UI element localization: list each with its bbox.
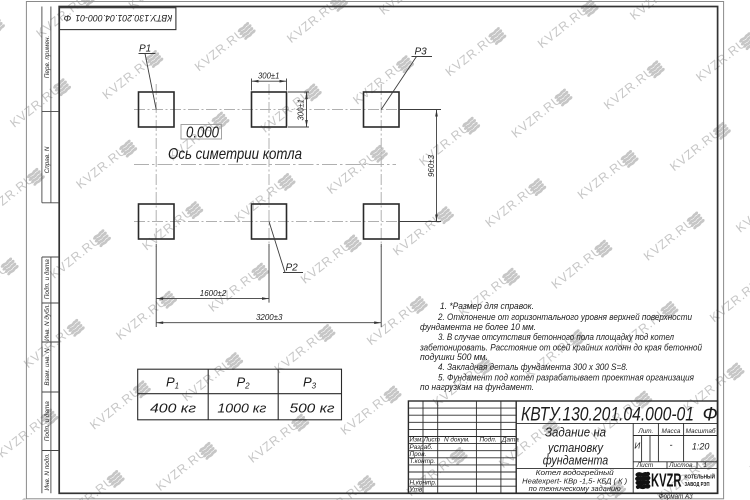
svg-text:Ф: Ф [63,12,71,23]
svg-text:Утв.: Утв. [409,487,425,494]
svg-text:0.000: 0.000 [186,125,219,142]
svg-text:960±3: 960±3 [426,155,436,177]
svg-text:KVZR.RU: KVZR.RU [364,299,420,348]
svg-text:KVZR.RU: KVZR.RU [509,92,565,141]
svg-text:KVZR.RU: KVZR.RU [535,2,591,51]
svg-text:КОТЕЛЬНЫЙ: КОТЕЛЬНЫЙ [685,473,716,481]
svg-text:1:20: 1:20 [692,442,710,452]
svg-text:Подп. и дата: Подп. и дата [43,401,51,441]
svg-text:Heatexpert- КВр -1,5- КБД ( К: Heatexpert- КВр -1,5- КБД ( К ) [522,478,627,485]
svg-text:1. *Размер для справок.: 1. *Размер для справок. [440,301,534,311]
svg-text:забетонировать. Расстояние от: забетонировать. Расстояние от осей крайн… [419,342,702,352]
svg-text:P3: P3 [415,47,428,58]
svg-text:Лист: Лист [423,437,441,444]
svg-text:KVZR.RU: KVZR.RU [324,148,380,197]
svg-text:P1: P1 [139,44,151,55]
svg-text:KVZR.RU: KVZR.RU [192,25,248,74]
svg-text:KVZR.RU: KVZR.RU [113,294,169,343]
svg-text:Лист: Лист [636,462,654,469]
svg-text:Лит.: Лит. [637,428,653,435]
svg-text:500 кг: 500 кг [290,402,335,416]
svg-text:KVZR.RU: KVZR.RU [298,238,354,287]
svg-text:KVZR.RU: KVZR.RU [377,0,433,18]
svg-text:N докум.: N докум. [444,436,470,444]
svg-text:3. В случае отсутствия бетонно: 3. В случае отсутствия бетонного пола пл… [438,332,674,342]
svg-text:P2: P2 [237,375,251,391]
svg-text:KVZR.RU: KVZR.RU [140,205,196,254]
svg-text:2. Отклонение от горизонтально: 2. Отклонение от горизонтального уровня … [437,312,692,322]
svg-text:1: 1 [703,462,707,469]
svg-text:3200±3: 3200±3 [256,312,283,322]
svg-text:подушки 500 мм.: подушки 500 мм. [420,352,488,362]
svg-text:КВТУ.130.201.04.000-01: КВТУ.130.201.04.000-01 [521,405,694,426]
svg-text:по техническому заданию: по техническому заданию [529,485,622,493]
svg-text:Масштаб: Масштаб [686,427,716,435]
svg-text:Разраб.: Разраб. [410,443,433,451]
svg-text:4. Закладная деталь фундамента: 4. Закладная деталь фундамента 300 x 300… [438,362,628,372]
svg-text:KVZR.RU: KVZR.RU [575,153,631,202]
svg-text:300±1: 300±1 [258,70,280,80]
svg-text:Взам. инв. N: Взам. инв. N [44,348,51,386]
svg-text:1600±2: 1600±2 [200,288,227,298]
svg-text:-: - [670,440,673,450]
svg-text:фундамента не более 10 мм.: фундамента не более 10 мм. [420,322,536,332]
svg-text:Котел водогрейный: Котел водогрейный [536,469,614,477]
svg-text:Перв. примен.: Перв. примен. [44,36,51,78]
svg-text:KVZR.RU: KVZR.RU [246,417,302,466]
svg-text:KVZR.RU: KVZR.RU [549,243,605,292]
svg-text:KVZR.RU: KVZR.RU [7,82,63,131]
svg-text:KVZR.RU: KVZR.RU [733,187,750,236]
svg-text:KVZR.RU: KVZR.RU [483,182,539,231]
svg-text:KVZR: KVZR [651,469,682,490]
svg-text:P1: P1 [166,375,179,391]
svg-text:KVZR.RU: KVZR.RU [153,445,209,494]
svg-text:300±1: 300±1 [296,99,306,121]
svg-text:KVZR.RU: KVZR.RU [100,54,156,103]
svg-text:KVZR.RU: KVZR.RU [627,0,683,23]
svg-text:Инв. N подл.: Инв. N подл. [43,453,51,490]
svg-text:KVZR.RU: KVZR.RU [232,176,288,225]
svg-text:ЗАВОД РЭП: ЗАВОД РЭП [685,482,710,488]
svg-text:400 кг: 400 кг [150,402,196,416]
svg-text:1000 кг: 1000 кг [217,402,266,416]
svg-text:KVZR.RU: KVZR.RU [641,215,697,264]
svg-text:Подп. и дата: Подп. и дата [43,259,51,299]
svg-text:Ось симетрии котла: Ось симетрии котла [168,146,302,163]
svg-text:KVZR.RU: KVZR.RU [338,389,394,438]
svg-text:по нагрузкам на фундамент.: по нагрузкам на фундамент. [420,382,534,392]
svg-text:P2: P2 [286,263,299,274]
svg-text:Пров.: Пров. [410,451,427,458]
svg-text:KVZR.RU: KVZR.RU [87,384,143,433]
svg-text:И: И [634,442,640,451]
svg-text:КВТУ.130.201.04.000-01: КВТУ.130.201.04.000-01 [75,12,172,23]
svg-text:KVZR.RU: KVZR.RU [707,276,750,325]
svg-text:Формат А3: Формат А3 [659,491,694,500]
svg-text:Дата: Дата [501,437,519,444]
svg-text:KVZR.RU: KVZR.RU [350,59,406,108]
svg-text:KVZR.RU: KVZR.RU [180,356,236,405]
svg-text:Ф: Ф [703,405,718,426]
svg-text:Подп.: Подп. [480,436,497,444]
svg-text:Справ. N: Справ. N [44,146,51,173]
svg-text:5. Фундамент под котел разраба: 5. Фундамент под котел разрабатывает про… [438,372,694,382]
svg-text:Т.контр.: Т.контр. [410,458,436,465]
svg-text:KVZR.RU: KVZR.RU [74,143,130,192]
svg-text:фундамента: фундамента [543,454,609,468]
svg-text:KVZR.RU: KVZR.RU [693,36,749,85]
svg-text:KVZR.RU: KVZR.RU [601,64,657,113]
svg-text:Н.контр.: Н.контр. [410,480,437,487]
svg-text:Инв. N дубл.: Инв. N дубл. [43,304,51,341]
svg-text:Листов: Листов [668,462,693,469]
svg-text:Масса: Масса [662,428,681,435]
svg-text:KVZR.RU: KVZR.RU [443,31,499,80]
svg-text:P3: P3 [303,375,317,391]
svg-text:KVZR.RU: KVZR.RU [667,125,723,174]
svg-text:Задание на: Задание на [545,426,606,440]
svg-text:Изм.: Изм. [410,437,424,444]
